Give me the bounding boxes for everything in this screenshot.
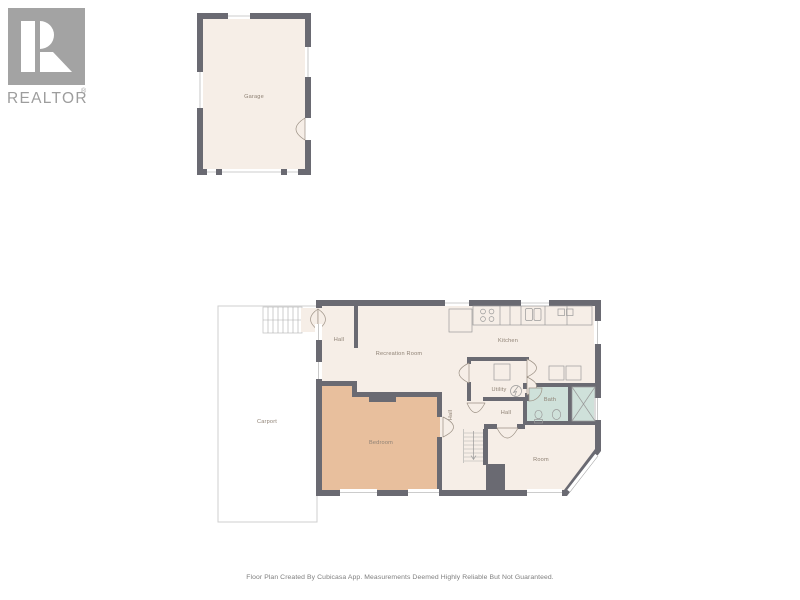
window-icon: [445, 300, 469, 306]
room-label-garage: Garage: [244, 94, 264, 100]
realtor-r-stem: [21, 21, 35, 72]
room-label-bedroom: Bedroom: [369, 440, 393, 446]
window-icon: [305, 47, 311, 77]
chimney-block: [486, 464, 505, 490]
window-icon: [594, 321, 601, 344]
room-label-utility: Utility: [491, 387, 506, 393]
garage-side-door-opening: [305, 118, 311, 140]
floorplan-page: REALTOR ® Garage: [0, 0, 800, 600]
window-icon: [315, 362, 322, 379]
window-icon: [408, 489, 439, 496]
window-icon: [228, 13, 250, 19]
window-icon: [315, 324, 322, 340]
realtor-logo: REALTOR ®: [7, 8, 88, 107]
garage-door-post: [216, 169, 222, 175]
room-label-bath: Bath: [544, 397, 556, 403]
garage-floorplan: Garage: [197, 13, 311, 175]
window-icon: [197, 72, 203, 108]
room-label-hall-corridor: Hall: [448, 410, 454, 420]
realtor-wordmark: REALTOR: [7, 90, 88, 107]
garage-door-opening: [207, 169, 298, 175]
garage-door-post: [281, 169, 287, 175]
footer-disclaimer: Floor Plan Created By Cubicasa App. Meas…: [246, 574, 554, 581]
room-label-room: Room: [533, 457, 549, 463]
floorplan-canvas: REALTOR ® Garage: [0, 0, 800, 600]
main-floorplan: Hall Recreation Room Kitchen Utility Bat…: [218, 300, 601, 522]
room-label-carport: Carport: [257, 419, 277, 425]
room-label-hall-center: Hall: [501, 410, 511, 416]
window-icon: [527, 489, 562, 496]
closet-doors: [369, 397, 396, 402]
window-icon: [340, 489, 377, 496]
room-label-hall-entry: Hall: [334, 337, 344, 343]
room-label-recreation: Recreation Room: [376, 351, 423, 357]
window-icon: [521, 300, 549, 306]
carport-area: [218, 306, 317, 522]
registered-mark: ®: [81, 87, 87, 95]
stairs-icon: [263, 307, 302, 333]
room-label-kitchen: Kitchen: [498, 338, 518, 344]
